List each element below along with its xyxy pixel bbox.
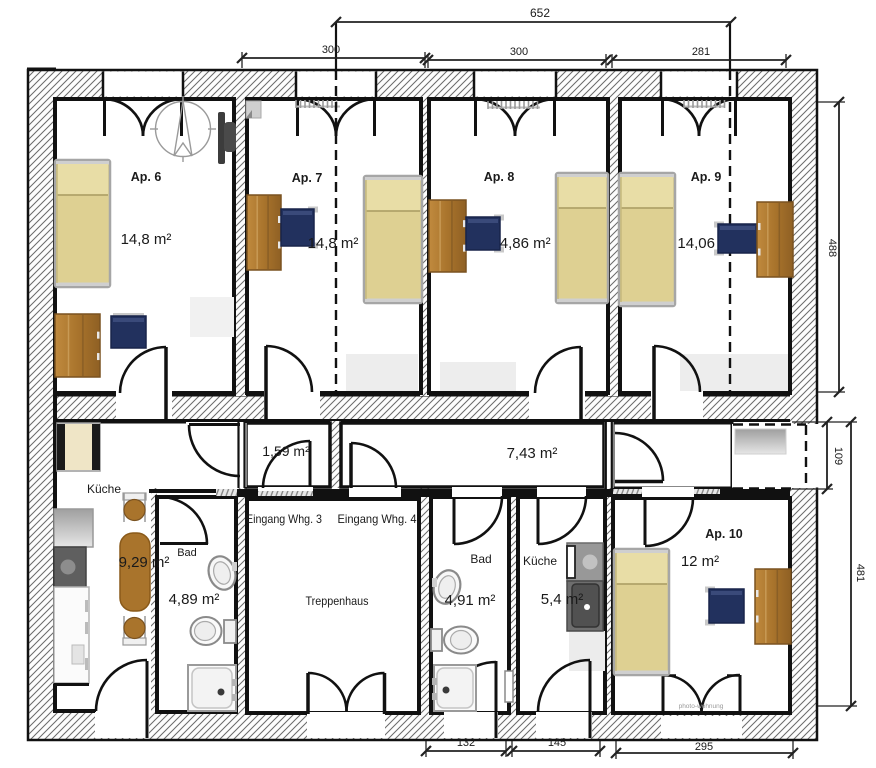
- svg-text:Ap. 9: Ap. 9: [691, 170, 722, 184]
- svg-text:5,4 m²: 5,4 m²: [541, 591, 584, 608]
- svg-text:14,8 m²: 14,8 m²: [308, 235, 359, 252]
- svg-text:295: 295: [695, 741, 713, 753]
- svg-text:109: 109: [832, 447, 844, 465]
- svg-text:Eingang Whg. 3: Eingang Whg. 3: [246, 512, 322, 526]
- svg-text:Bad: Bad: [177, 547, 197, 559]
- svg-text:1,59 m²: 1,59 m²: [262, 443, 310, 459]
- svg-text:12 m²: 12 m²: [681, 553, 719, 570]
- svg-text:4,91 m²: 4,91 m²: [445, 592, 496, 609]
- svg-text:4,89 m²: 4,89 m²: [169, 591, 220, 608]
- svg-text:7,43 m²: 7,43 m²: [507, 445, 558, 462]
- svg-text:Küche: Küche: [87, 482, 121, 496]
- svg-text:652: 652: [530, 6, 550, 20]
- svg-text:Küche: Küche: [523, 554, 557, 568]
- svg-text:9,29 m²: 9,29 m²: [119, 554, 170, 571]
- svg-text:481: 481: [854, 564, 866, 582]
- svg-text:281: 281: [692, 46, 710, 58]
- svg-text:Ap. 8: Ap. 8: [484, 170, 515, 184]
- svg-text:132: 132: [457, 737, 475, 749]
- svg-text:300: 300: [322, 44, 340, 56]
- svg-text:Ap. 7: Ap. 7: [292, 171, 323, 185]
- svg-text:Bad: Bad: [470, 552, 491, 566]
- svg-text:488: 488: [826, 239, 838, 257]
- svg-text:Eingang Whg. 4: Eingang Whg. 4: [338, 512, 417, 526]
- svg-text:14,8 m²: 14,8 m²: [121, 231, 172, 248]
- svg-text:Treppenhaus: Treppenhaus: [306, 594, 369, 608]
- svg-text:145: 145: [548, 737, 566, 749]
- svg-text:300: 300: [510, 46, 528, 58]
- svg-text:photo-wohnung: photo-wohnung: [679, 703, 724, 710]
- svg-text:Ap. 6: Ap. 6: [131, 170, 162, 184]
- svg-text:Ap. 10: Ap. 10: [705, 527, 743, 541]
